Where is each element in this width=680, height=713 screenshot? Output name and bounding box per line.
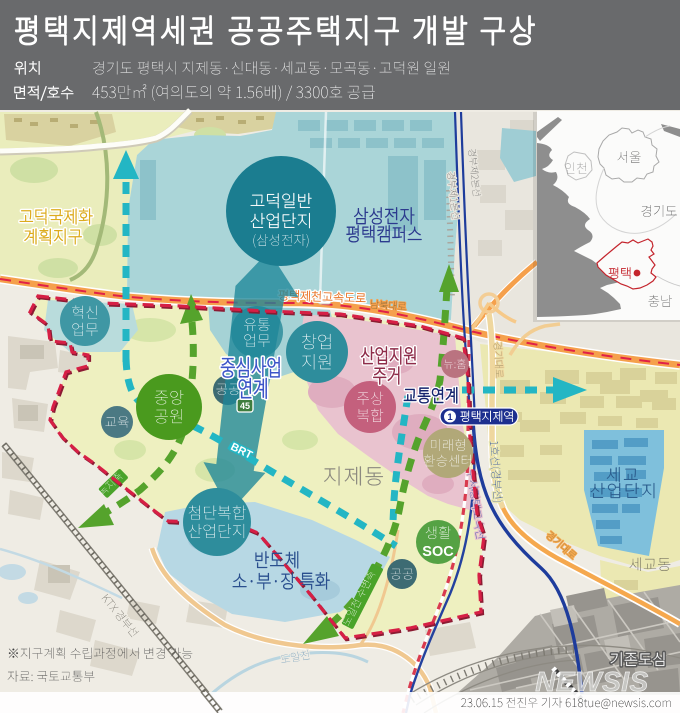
svg-text:1: 1 [447, 412, 453, 423]
svg-text:NEWSIS: NEWSIS [535, 666, 648, 697]
svg-text:45: 45 [240, 401, 250, 411]
svg-text:SOC: SOC [422, 544, 454, 560]
